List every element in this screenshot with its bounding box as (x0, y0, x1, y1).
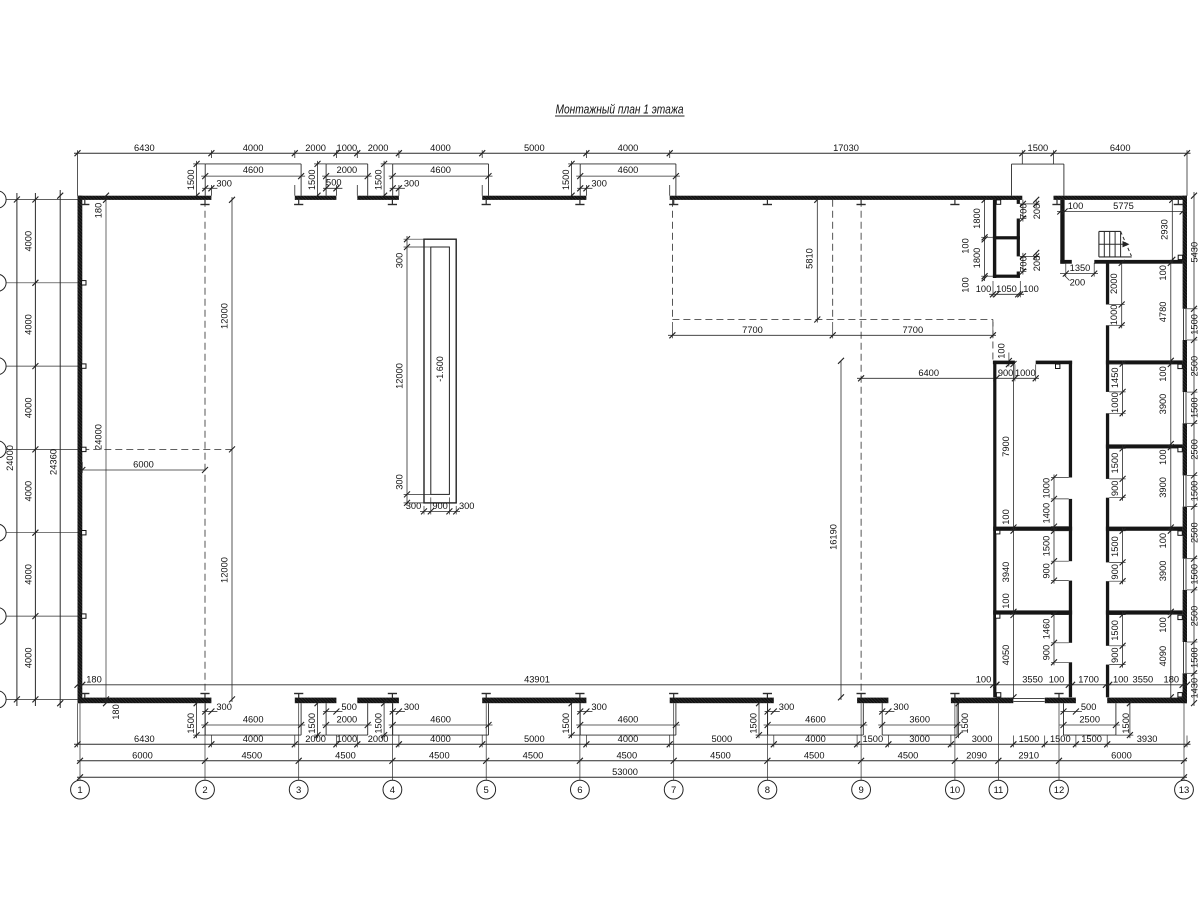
svg-text:1430: 1430 (1190, 678, 1200, 699)
svg-text:4500: 4500 (710, 750, 731, 760)
svg-text:4050: 4050 (1001, 645, 1011, 666)
svg-text:180: 180 (111, 704, 121, 720)
svg-text:2090: 2090 (966, 750, 987, 760)
svg-text:7700: 7700 (742, 325, 763, 335)
svg-text:1500: 1500 (374, 169, 384, 190)
svg-text:5430: 5430 (1190, 242, 1200, 263)
svg-text:900: 900 (998, 368, 1014, 378)
svg-text:4000: 4000 (24, 397, 34, 418)
svg-text:1000: 1000 (1041, 478, 1051, 499)
svg-text:4000: 4000 (243, 734, 264, 744)
svg-text:100: 100 (1113, 674, 1129, 684)
svg-text:3: 3 (296, 785, 301, 796)
svg-text:300: 300 (779, 702, 795, 712)
svg-text:300: 300 (591, 702, 607, 712)
svg-text:4600: 4600 (243, 714, 264, 724)
svg-text:900: 900 (1110, 481, 1120, 497)
svg-text:1050: 1050 (996, 284, 1017, 294)
svg-text:200: 200 (1032, 204, 1042, 220)
svg-text:4500: 4500 (429, 750, 450, 760)
svg-text:2500: 2500 (1190, 439, 1200, 460)
svg-text:100: 100 (961, 277, 971, 293)
svg-text:100: 100 (1068, 201, 1084, 211)
svg-text:1500: 1500 (1028, 143, 1049, 153)
svg-text:1500: 1500 (1041, 536, 1051, 557)
svg-text:3940: 3940 (1001, 562, 1011, 583)
svg-text:1400: 1400 (1041, 503, 1051, 524)
svg-text:6400: 6400 (1110, 143, 1131, 153)
svg-text:100: 100 (1049, 674, 1065, 684)
svg-text:1500: 1500 (1110, 620, 1120, 641)
svg-text:100: 100 (1158, 449, 1168, 465)
svg-text:500: 500 (1081, 702, 1097, 712)
svg-text:300: 300 (404, 179, 420, 189)
svg-text:4000: 4000 (618, 143, 639, 153)
svg-text:300: 300 (591, 179, 607, 189)
svg-text:3000: 3000 (909, 734, 930, 744)
svg-text:900: 900 (1041, 563, 1051, 579)
svg-text:300: 300 (459, 501, 475, 511)
svg-text:1500: 1500 (1121, 713, 1131, 734)
svg-text:4780: 4780 (1158, 302, 1168, 323)
svg-text:300: 300 (216, 179, 232, 189)
svg-text:2500: 2500 (1190, 356, 1200, 377)
svg-text:300: 300 (893, 702, 909, 712)
svg-text:700: 700 (1019, 203, 1029, 219)
svg-text:700: 700 (1019, 256, 1029, 272)
svg-text:100: 100 (1158, 617, 1168, 633)
svg-text:1500: 1500 (748, 713, 758, 734)
svg-text:1000: 1000 (1110, 392, 1120, 413)
svg-text:6400: 6400 (918, 368, 939, 378)
svg-text:1000: 1000 (337, 734, 358, 744)
svg-text:2000: 2000 (1109, 273, 1119, 294)
svg-text:1500: 1500 (1190, 481, 1200, 502)
svg-text:1000: 1000 (1015, 368, 1036, 378)
svg-text:1500: 1500 (1190, 397, 1200, 418)
svg-text:2000: 2000 (337, 165, 358, 175)
svg-text:5810: 5810 (805, 248, 815, 269)
svg-text:6000: 6000 (1111, 750, 1132, 760)
svg-text:4600: 4600 (805, 714, 826, 724)
svg-text:4: 4 (390, 785, 395, 796)
svg-text:7: 7 (671, 785, 676, 796)
svg-text:4500: 4500 (241, 750, 262, 760)
svg-text:3000: 3000 (972, 734, 993, 744)
svg-text:1500: 1500 (1081, 734, 1102, 744)
svg-text:4000: 4000 (243, 143, 264, 153)
svg-text:17030: 17030 (833, 143, 859, 153)
svg-text:12: 12 (1054, 785, 1065, 796)
svg-text:1350: 1350 (1070, 263, 1091, 273)
svg-text:3930: 3930 (1137, 734, 1158, 744)
svg-text:53000: 53000 (612, 767, 638, 777)
svg-text:4600: 4600 (430, 714, 451, 724)
svg-text:4000: 4000 (24, 231, 34, 252)
svg-text:12000: 12000 (220, 303, 230, 329)
svg-text:300: 300 (394, 253, 404, 269)
svg-text:1000: 1000 (1109, 305, 1119, 326)
svg-text:1500: 1500 (307, 169, 317, 190)
svg-text:4000: 4000 (24, 647, 34, 668)
svg-text:1500: 1500 (1019, 734, 1040, 744)
svg-text:11: 11 (993, 785, 1003, 796)
svg-text:500: 500 (326, 177, 342, 187)
svg-text:3550: 3550 (1022, 674, 1043, 684)
svg-text:500: 500 (341, 702, 357, 712)
svg-text:5775: 5775 (1113, 201, 1134, 211)
svg-text:13: 13 (1179, 785, 1190, 796)
svg-text:9: 9 (858, 785, 863, 796)
svg-text:4600: 4600 (430, 165, 451, 175)
svg-text:43901: 43901 (524, 674, 550, 684)
svg-text:4000: 4000 (430, 143, 451, 153)
svg-text:4500: 4500 (335, 750, 356, 760)
svg-text:2500: 2500 (1190, 606, 1200, 627)
svg-text:4000: 4000 (430, 734, 451, 744)
svg-text:1500: 1500 (561, 169, 571, 190)
svg-text:8: 8 (765, 785, 770, 796)
svg-text:1500: 1500 (1110, 536, 1120, 557)
svg-text:10: 10 (950, 785, 961, 796)
svg-text:24000: 24000 (5, 445, 15, 471)
svg-text:6000: 6000 (132, 750, 153, 760)
svg-text:200: 200 (1070, 278, 1086, 288)
svg-text:1500: 1500 (374, 713, 384, 734)
svg-text:1500: 1500 (1050, 734, 1071, 744)
svg-text:4500: 4500 (616, 750, 637, 760)
svg-text:2000: 2000 (305, 143, 326, 153)
svg-text:2: 2 (202, 785, 207, 796)
svg-text:2000: 2000 (337, 714, 358, 724)
svg-text:6430: 6430 (134, 734, 155, 744)
svg-text:4500: 4500 (898, 750, 919, 760)
svg-text:3600: 3600 (909, 714, 930, 724)
svg-text:1500: 1500 (1190, 314, 1200, 335)
svg-text:5: 5 (484, 785, 489, 796)
svg-text:100: 100 (1158, 533, 1168, 549)
svg-text:2500: 2500 (1190, 522, 1200, 543)
svg-text:3900: 3900 (1158, 561, 1168, 582)
svg-text:4000: 4000 (805, 734, 826, 744)
svg-text:3900: 3900 (1158, 477, 1168, 498)
svg-text:100: 100 (976, 284, 992, 294)
svg-text:1500: 1500 (1190, 647, 1200, 668)
svg-text:100: 100 (996, 343, 1006, 359)
svg-text:1500: 1500 (1190, 564, 1200, 585)
svg-text:300: 300 (394, 474, 404, 490)
svg-text:5000: 5000 (524, 143, 545, 153)
svg-text:5000: 5000 (524, 734, 545, 744)
svg-text:-1.600: -1.600 (435, 356, 445, 382)
svg-text:300: 300 (404, 702, 420, 712)
svg-text:2930: 2930 (1160, 219, 1170, 240)
svg-text:7900: 7900 (1001, 436, 1011, 457)
svg-text:24000: 24000 (94, 424, 104, 450)
svg-text:4000: 4000 (24, 564, 34, 585)
svg-text:100: 100 (1001, 593, 1011, 609)
svg-text:1000: 1000 (337, 143, 358, 153)
svg-text:900: 900 (1110, 564, 1120, 580)
svg-text:4000: 4000 (618, 734, 639, 744)
svg-text:100: 100 (961, 238, 971, 254)
svg-text:1500: 1500 (186, 169, 196, 190)
svg-text:4600: 4600 (618, 165, 639, 175)
svg-text:1500: 1500 (561, 713, 571, 734)
svg-text:4600: 4600 (618, 714, 639, 724)
svg-text:4600: 4600 (243, 165, 264, 175)
svg-text:1460: 1460 (1041, 619, 1051, 640)
svg-text:180: 180 (94, 203, 104, 219)
svg-text:1500: 1500 (1110, 453, 1120, 474)
svg-text:12000: 12000 (394, 363, 404, 389)
svg-text:6: 6 (577, 785, 582, 796)
svg-text:1800: 1800 (972, 208, 982, 229)
svg-text:12000: 12000 (220, 557, 230, 583)
svg-text:100: 100 (1023, 284, 1039, 294)
svg-text:3550: 3550 (1133, 674, 1154, 684)
svg-text:1: 1 (77, 785, 82, 796)
svg-text:300: 300 (216, 702, 232, 712)
svg-text:4500: 4500 (523, 750, 544, 760)
svg-text:24360: 24360 (49, 449, 59, 475)
svg-text:200: 200 (1032, 256, 1042, 272)
svg-text:1500: 1500 (960, 713, 970, 734)
svg-text:1500: 1500 (186, 713, 196, 734)
svg-text:100: 100 (1001, 509, 1011, 525)
svg-text:2500: 2500 (1079, 714, 1100, 724)
svg-text:1450: 1450 (1110, 367, 1120, 388)
svg-text:4000: 4000 (24, 314, 34, 335)
svg-text:100: 100 (976, 674, 992, 684)
svg-text:100: 100 (1158, 366, 1168, 382)
svg-text:1700: 1700 (1078, 674, 1099, 684)
svg-text:6000: 6000 (133, 460, 154, 470)
svg-text:1500: 1500 (307, 713, 317, 734)
svg-text:4500: 4500 (804, 750, 825, 760)
svg-text:180: 180 (1164, 674, 1180, 684)
svg-text:3900: 3900 (1158, 394, 1168, 415)
svg-text:Монтажный план 1 этажа: Монтажный план 1 этажа (556, 103, 684, 117)
svg-text:900: 900 (1041, 645, 1051, 661)
svg-text:2000: 2000 (368, 734, 389, 744)
svg-text:100: 100 (1158, 265, 1168, 281)
svg-text:1800: 1800 (972, 248, 982, 269)
svg-text:2000: 2000 (368, 143, 389, 153)
svg-text:2910: 2910 (1018, 750, 1039, 760)
svg-text:4090: 4090 (1158, 646, 1168, 667)
svg-text:180: 180 (86, 674, 102, 684)
svg-text:2000: 2000 (305, 734, 326, 744)
svg-text:16190: 16190 (828, 524, 838, 550)
svg-text:6430: 6430 (134, 143, 155, 153)
svg-text:1500: 1500 (862, 734, 883, 744)
svg-text:7700: 7700 (902, 325, 923, 335)
svg-text:4000: 4000 (24, 481, 34, 502)
svg-text:300: 300 (406, 501, 422, 511)
svg-text:5000: 5000 (711, 734, 732, 744)
svg-text:900: 900 (432, 501, 448, 511)
svg-text:900: 900 (1110, 647, 1120, 663)
